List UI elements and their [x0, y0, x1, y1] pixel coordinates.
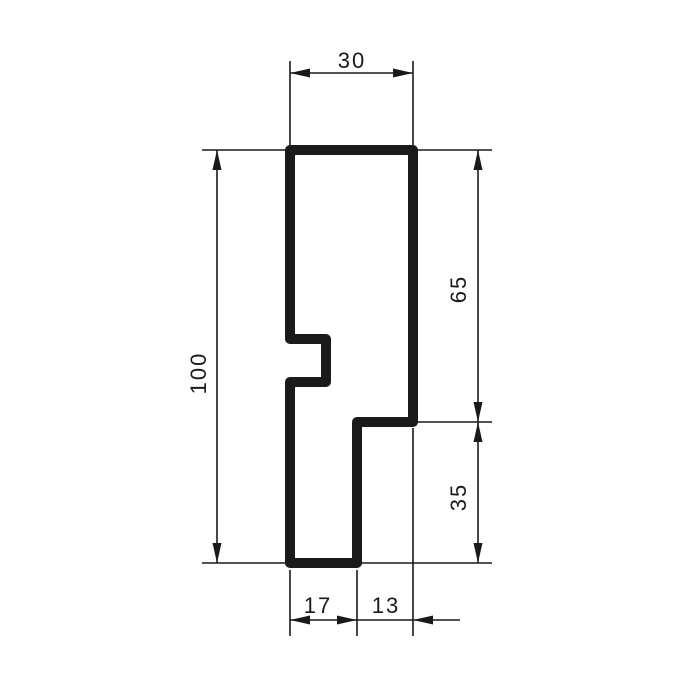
dim-label-bottom-left-width: 17: [304, 593, 332, 618]
dim-label-top-width: 30: [338, 48, 366, 73]
dim-label-overall-height: 100: [186, 352, 211, 395]
dimension-lines: [217, 73, 478, 620]
arrowhead-up-icon: [474, 150, 483, 170]
arrowhead-up-icon: [213, 150, 222, 170]
arrowhead-right-icon: [393, 69, 413, 78]
technical-drawing: 30 100 65 35 17 13: [0, 0, 686, 686]
arrowhead-left-icon: [290, 69, 310, 78]
arrowhead-down-icon: [474, 543, 483, 563]
arrowhead-up-icon: [474, 422, 483, 442]
dim-label-right-lower-height: 35: [446, 483, 471, 511]
arrowhead-down-icon: [213, 543, 222, 563]
dimension-labels: 30 100 65 35 17 13: [186, 48, 471, 618]
arrowhead-down-icon: [474, 402, 483, 422]
dim-label-right-upper-height: 65: [446, 275, 471, 303]
arrowhead-left-icon: [413, 616, 433, 625]
profile-outline: [290, 150, 413, 563]
arrowhead-right-icon: [337, 616, 357, 625]
dim-label-bottom-right-width: 13: [372, 593, 400, 618]
drawing-canvas: 30 100 65 35 17 13: [0, 0, 686, 686]
